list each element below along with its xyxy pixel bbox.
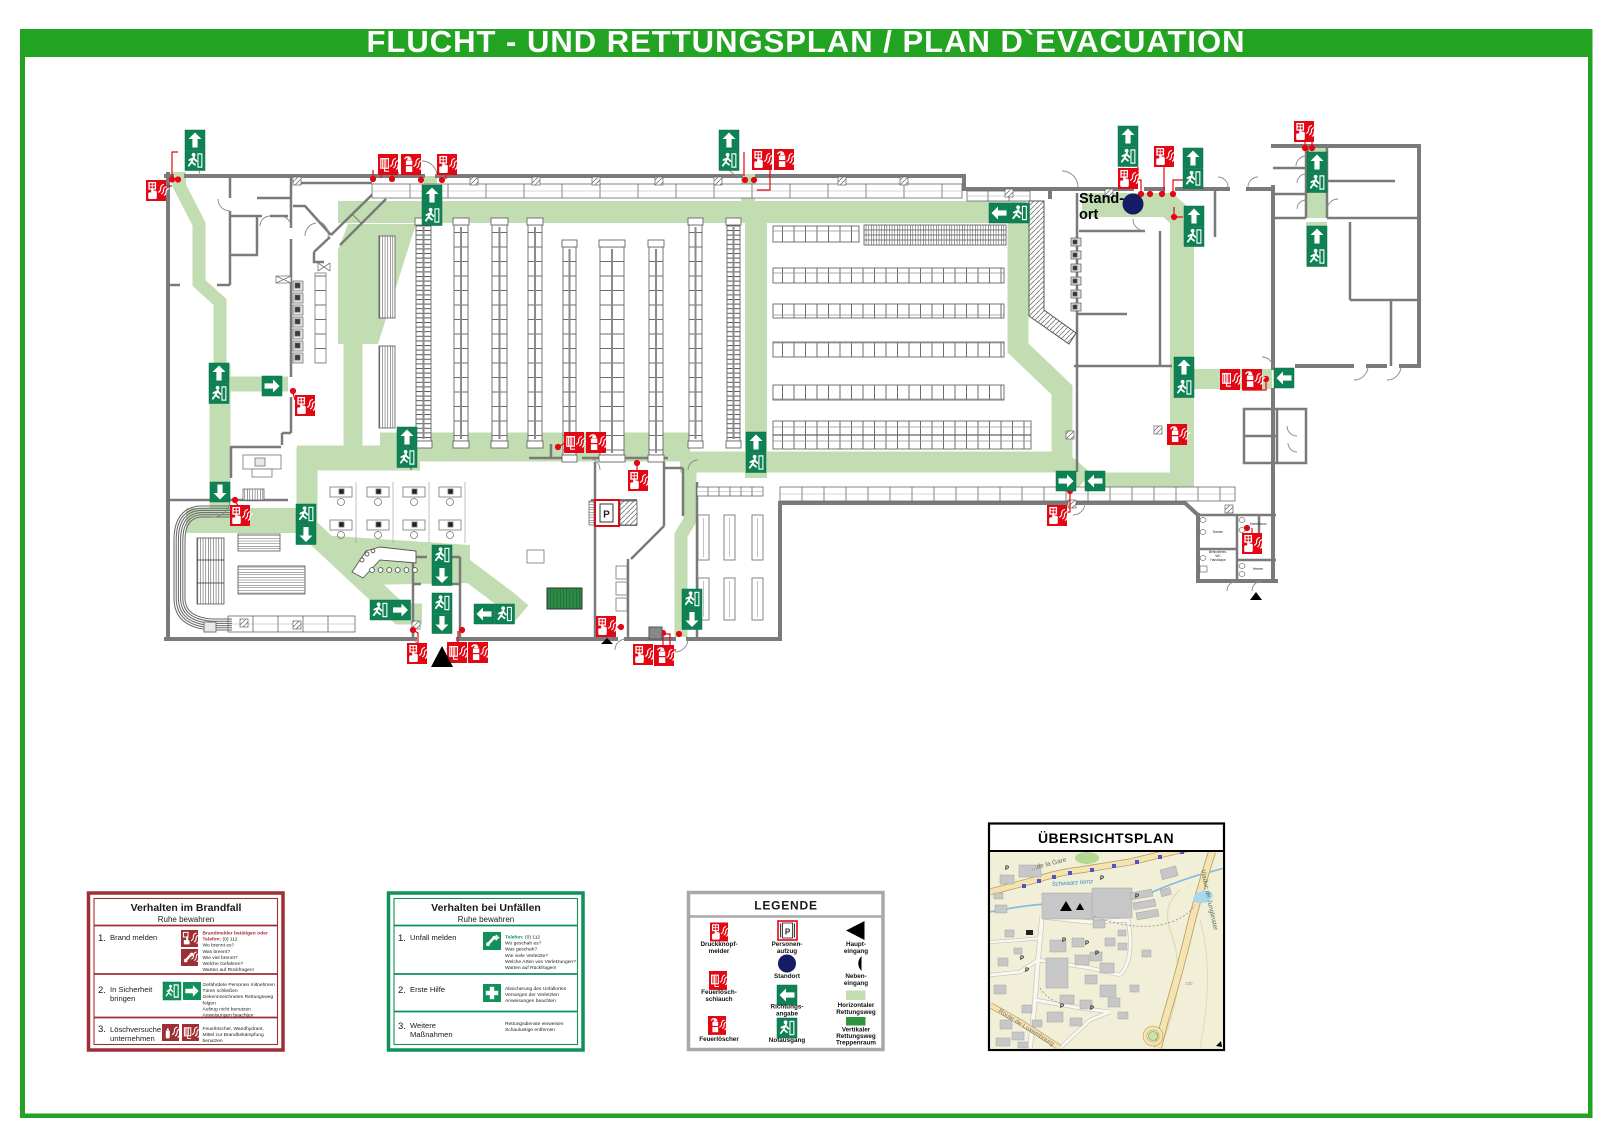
svg-text:Telefon: (0) 112: Telefon: (0) 112 (505, 935, 540, 941)
svg-text:Schaulustige entfernen: Schaulustige entfernen (505, 1027, 555, 1033)
svg-text:Telefon: (0) 112: Telefon: (0) 112 (203, 937, 238, 943)
svg-text:aufzug: aufzug (777, 948, 797, 955)
svg-text:Aufzug nicht benutzen: Aufzug nicht benutzen (203, 1006, 252, 1012)
svg-text:2.: 2. (398, 985, 406, 996)
svg-text:Standort: Standort (774, 973, 801, 980)
svg-text:P: P (1100, 876, 1104, 882)
svg-text:Rettungsdienste einweisen: Rettungsdienste einweisen (505, 1021, 564, 1027)
svg-text:Warten auf Rückfragen!: Warten auf Rückfragen! (203, 967, 254, 973)
svg-text:Versorgen der Verletzten: Versorgen der Verletzten (505, 992, 559, 998)
svg-text:Wo brennt es?: Wo brennt es? (203, 943, 235, 949)
svg-text:Weitere: Weitere (410, 1021, 436, 1030)
svg-text:Absicherung des Unfallortes: Absicherung des Unfallortes (505, 986, 567, 992)
svg-text:Herren: Herren (1253, 567, 1263, 571)
svg-text:Anweisungen beachten: Anweisungen beachten (505, 998, 556, 1004)
svg-text:Anweisungen beachten: Anweisungen beachten (203, 1013, 254, 1019)
svg-text:Welche Arten von Verletzungen?: Welche Arten von Verletzungen? (505, 959, 576, 965)
svg-text:schlauch: schlauch (705, 996, 732, 1003)
svg-text:Richtungs-: Richtungs- (771, 1004, 804, 1011)
svg-text:melder: melder (709, 948, 730, 955)
svg-text:P: P (1095, 951, 1099, 957)
svg-text:bringen: bringen (110, 994, 135, 1003)
svg-text:P: P (1085, 941, 1089, 947)
svg-text:Brandmelder betätigen oder: Brandmelder betätigen oder (203, 931, 268, 937)
svg-text:Unfall melden: Unfall melden (410, 933, 456, 942)
svg-text:Personen-: Personen- (772, 941, 803, 948)
svg-text:Rettungsweg: Rettungsweg (836, 1009, 876, 1016)
svg-text:Feuerlöscher: Feuerlöscher (699, 1036, 739, 1043)
svg-text:Wie viel brennt?: Wie viel brennt? (203, 955, 238, 961)
svg-text:Verhalten bei Unfällen: Verhalten bei Unfällen (431, 902, 541, 914)
svg-text:angabe: angabe (776, 1011, 799, 1018)
svg-text:benutzen: benutzen (203, 1038, 223, 1044)
svg-text:P: P (1135, 894, 1139, 900)
svg-text:eingang: eingang (844, 948, 868, 955)
svg-text:P: P (1060, 1004, 1064, 1010)
svg-text:Wie viele Verletzte?: Wie viele Verletzte? (505, 953, 548, 959)
svg-text:Ruhe bewahren: Ruhe bewahren (458, 915, 514, 924)
svg-text:Erste Hilfe: Erste Hilfe (410, 985, 445, 994)
svg-text:Horizontaler: Horizontaler (838, 1002, 875, 1009)
svg-text:Stand-: Stand- (1079, 191, 1124, 207)
svg-text:Was brennt?: Was brennt? (203, 949, 231, 955)
svg-text:Haupt-: Haupt- (846, 941, 866, 948)
svg-text:P: P (603, 510, 610, 521)
svg-text:Löschversuche: Löschversuche (110, 1025, 161, 1034)
svg-text:Abstellraum: Abstellraum (1250, 522, 1267, 526)
svg-text:Warten auf Rückfragen!: Warten auf Rückfragen! (505, 965, 556, 971)
svg-text:Gefährdete Personen mitnehmen: Gefährdete Personen mitnehmen (203, 982, 276, 988)
svg-text:P: P (785, 928, 791, 937)
svg-text:eingang: eingang (844, 980, 868, 987)
svg-text:folgen: folgen (203, 1000, 217, 1006)
svg-text:P: P (1062, 938, 1066, 944)
svg-text:Gekennzeichneten Rettungsweg: Gekennzeichneten Rettungsweg (203, 994, 274, 1000)
svg-text:Neben-: Neben- (845, 973, 866, 980)
svg-text:3.: 3. (398, 1021, 406, 1032)
svg-text:2.: 2. (98, 985, 106, 996)
svg-text:1.: 1. (98, 933, 106, 944)
svg-text:Maßnahmen: Maßnahmen (410, 1030, 453, 1039)
svg-text:Druckknopf-: Druckknopf- (700, 941, 737, 948)
svg-text:P: P (1005, 866, 1009, 872)
svg-text:P: P (1025, 968, 1029, 974)
svg-text:Handicape: Handicape (1210, 558, 1225, 562)
svg-text:1.: 1. (398, 933, 406, 944)
svg-text:330: 330 (1185, 981, 1193, 986)
svg-text:Damen: Damen (1213, 530, 1224, 534)
svg-text:Mittel zur Brandbekämpfung: Mittel zur Brandbekämpfung (203, 1032, 264, 1038)
svg-text:ÜBERSICHTSPLAN: ÜBERSICHTSPLAN (1038, 830, 1174, 846)
svg-text:Verhalten im Brandfall: Verhalten im Brandfall (131, 902, 242, 914)
svg-text:Wo geschah es?: Wo geschah es? (505, 941, 542, 947)
svg-text:3.: 3. (98, 1024, 106, 1035)
svg-text:LEGENDE: LEGENDE (754, 899, 818, 913)
svg-text:Brand melden: Brand melden (110, 933, 157, 942)
svg-text:FLUCHT - UND RETTUNGSPLAN / PL: FLUCHT - UND RETTUNGSPLAN / PLAN D`ÈVACU… (366, 24, 1245, 59)
svg-text:P: P (1090, 1006, 1094, 1012)
svg-text:Feuerlöscher, Wandhydrant,: Feuerlöscher, Wandhydrant, (203, 1026, 264, 1032)
svg-text:ort: ort (1079, 207, 1099, 223)
svg-text:Feuerlösch-: Feuerlösch- (701, 989, 737, 996)
svg-text:In Sicherheit: In Sicherheit (110, 985, 153, 994)
svg-text:Welche Gefahren?: Welche Gefahren? (203, 961, 244, 967)
svg-text:Treppenraum: Treppenraum (836, 1040, 876, 1047)
svg-text:Notausgang: Notausgang (769, 1037, 806, 1044)
svg-text:P: P (1020, 956, 1024, 962)
svg-text:Türen schließen: Türen schließen (203, 988, 238, 994)
svg-text:Ruhe bewahren: Ruhe bewahren (158, 915, 214, 924)
svg-text:Was geschah?: Was geschah? (505, 947, 537, 953)
svg-text:unternehmen: unternehmen (110, 1034, 155, 1043)
